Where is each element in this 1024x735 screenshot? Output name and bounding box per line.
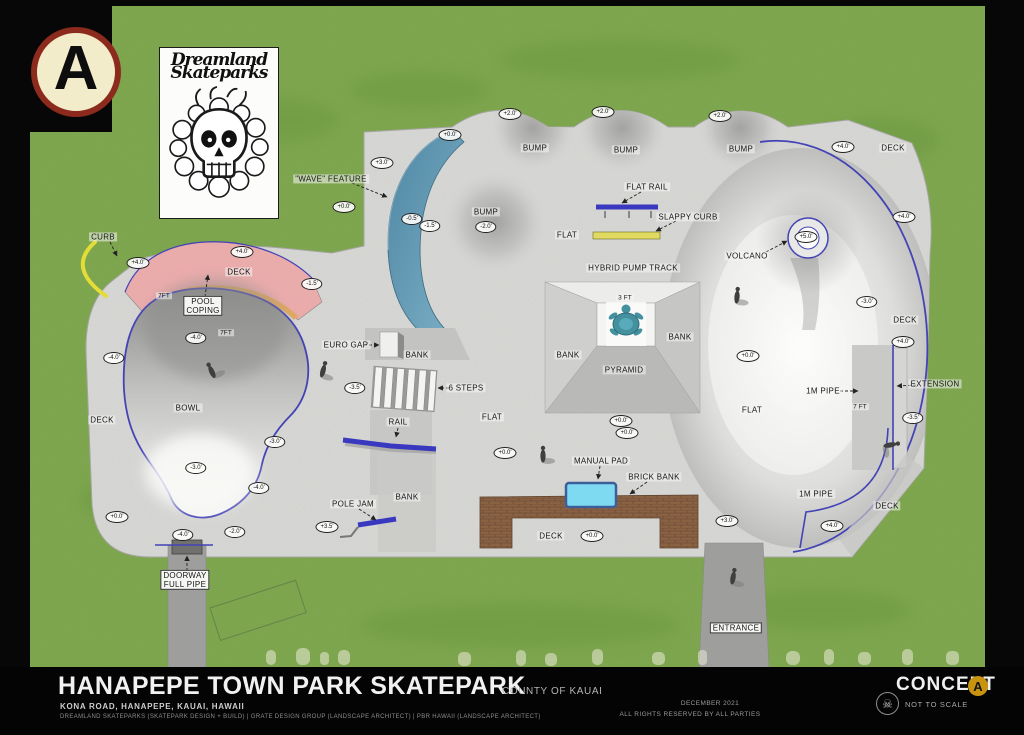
six-steps-stairs — [371, 366, 438, 412]
sheet: "WAVE" FEATUREBUMPBUMPBUMPBUMPFLAT RAILS… — [0, 0, 1024, 735]
slappy-curb-bar — [593, 232, 660, 239]
sheet-date: DECEMBER 2021 — [630, 700, 790, 707]
revision-a-badge: A — [31, 27, 121, 117]
pyramid — [545, 282, 700, 413]
dreamland-skateparks-logo: Dreamland Skateparks — [159, 47, 279, 219]
revision-letter: A — [54, 38, 99, 100]
logo-word-2: Skateparks — [171, 66, 268, 81]
project-address: KONA ROAD, HANAPEPE, KAUAI, HAWAII — [60, 702, 244, 711]
sheet-title: HANAPEPE TOWN PARK SKATEPARK — [58, 672, 526, 701]
manual-pad-shape — [566, 483, 616, 507]
dreamland-seal-icon: ☠ — [876, 692, 899, 715]
title-block: HANAPEPE TOWN PARK SKATEPARK COUNTY OF K… — [0, 667, 1024, 735]
rights-note: ALL RIGHTS RESERVED BY ALL PARTIES — [580, 711, 800, 718]
jurisdiction: COUNTY OF KAUAI — [502, 686, 603, 697]
euro-gap-block — [380, 332, 404, 359]
scale-note: NOT TO SCALE — [905, 700, 968, 709]
design-credits: DREAMLAND SKATEPARKS (SKATEPARK DESIGN +… — [60, 714, 541, 720]
entrance-path — [699, 543, 769, 668]
site-plan — [0, 0, 1024, 735]
concept-letter-badge: A — [968, 676, 988, 696]
skull-icon — [168, 82, 270, 204]
